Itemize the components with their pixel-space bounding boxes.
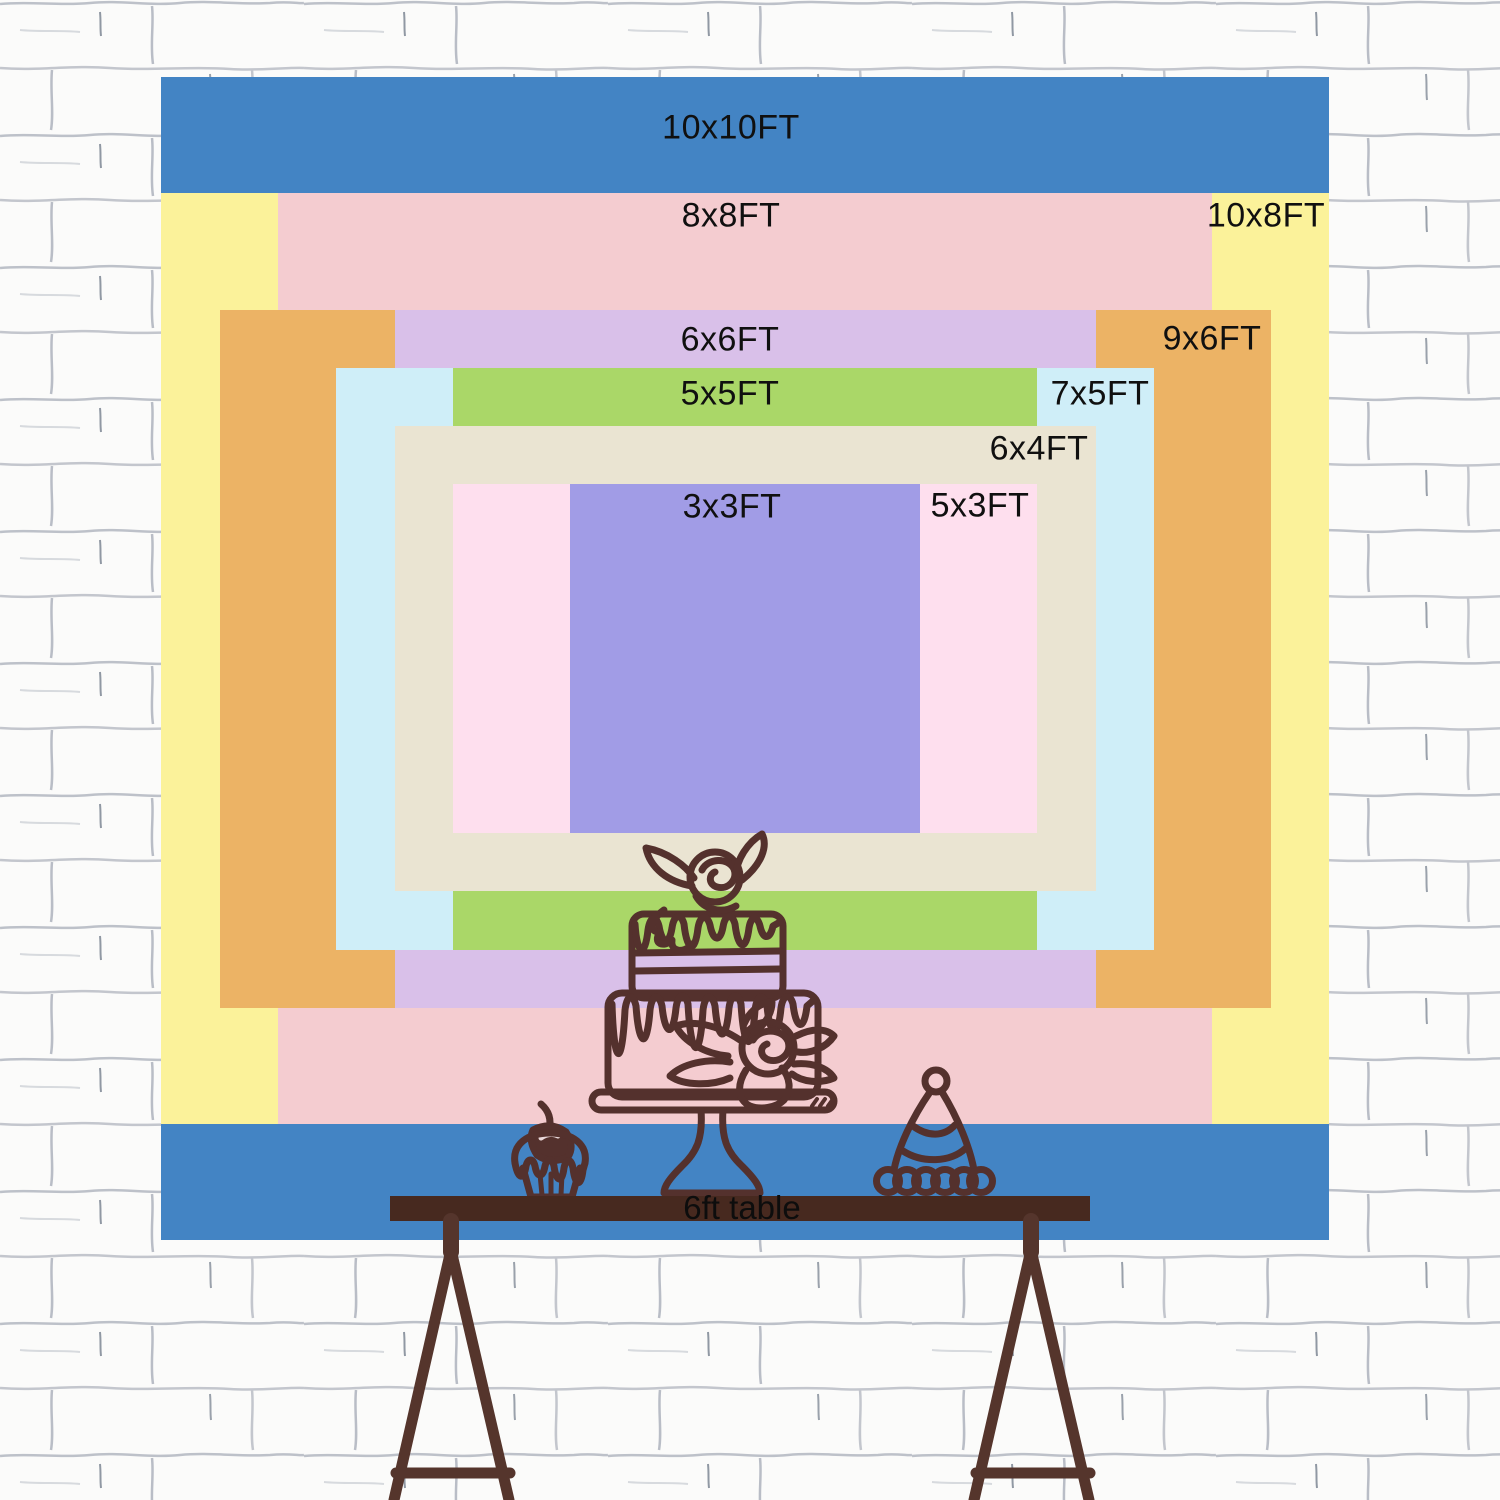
party-hat-illustration: [877, 1070, 993, 1193]
cupcake-illustration: [515, 1104, 586, 1197]
table-illustration: [390, 1196, 1090, 1500]
size-label-5x3ft: 5x3FT: [931, 487, 1030, 526]
size-label-6x6ft: 6x6FT: [681, 321, 780, 360]
table-size-label: 6ft table: [683, 1189, 800, 1227]
size-label-10x8ft: 10x8FT: [1207, 197, 1325, 236]
size-label-3x3ft: 3x3FT: [683, 488, 782, 527]
cake-illustration: [592, 834, 834, 1193]
size-label-10x10ft: 10x10FT: [662, 109, 800, 148]
size-label-8x8ft: 8x8FT: [682, 197, 781, 236]
size-label-9x6ft: 9x6FT: [1163, 320, 1262, 359]
backdrop-size-chart: 10x10FT 10x8FT 8x8FT 9x6FT 6x6FT 7x5FT 5…: [0, 0, 1500, 1500]
size-label-5x5ft: 5x5FT: [681, 375, 780, 414]
size-label-6x4ft: 6x4FT: [990, 430, 1089, 469]
size-label-7x5ft: 7x5FT: [1051, 375, 1150, 414]
table-legs: [394, 1221, 1090, 1500]
